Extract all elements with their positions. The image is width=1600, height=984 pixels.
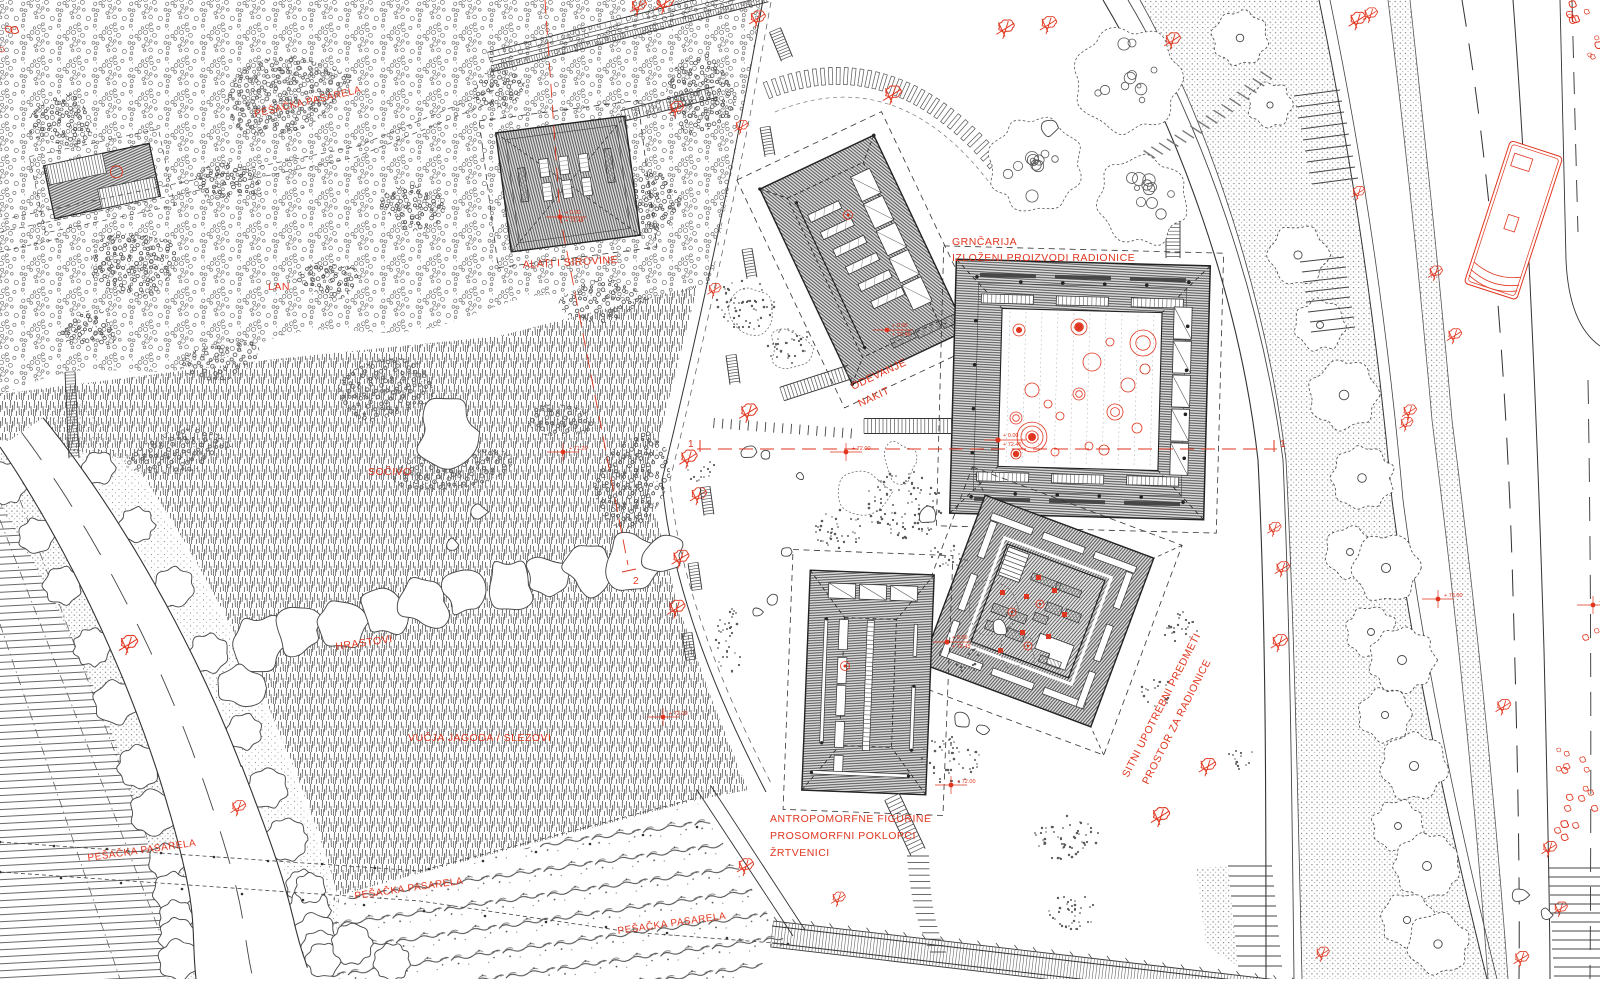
svg-text:+ 72.00: + 72.00 <box>852 446 871 452</box>
svg-text:IZLOŽENI PROIZVODI RADIONICE: IZLOŽENI PROIZVODI RADIONICE <box>952 251 1135 264</box>
svg-text:1: 1 <box>688 439 694 450</box>
svg-text:+ 72.45: + 72.45 <box>952 644 971 650</box>
svg-text:+ 0.00: + 0.00 <box>1003 433 1018 439</box>
svg-text:+ 0.00: + 0.00 <box>892 323 907 329</box>
svg-text:ŽRTVENICI: ŽRTVENICI <box>770 846 830 859</box>
svg-text:+ 71.20: + 71.20 <box>569 446 588 452</box>
svg-text:2: 2 <box>633 576 639 587</box>
svg-text:ANTROPOMORFNE FIGURINE: ANTROPOMORFNE FIGURINE <box>770 813 932 825</box>
svg-text:+ 72.46: + 72.46 <box>1003 442 1022 448</box>
svg-text:+ 73.00: + 73.00 <box>1444 593 1463 599</box>
svg-text:+ 0.00: + 0.00 <box>952 635 967 641</box>
svg-text:PROSOMORFNI POKLOPCI: PROSOMORFNI POKLOPCI <box>770 830 916 842</box>
svg-text:+ 72.00: + 72.00 <box>669 711 688 717</box>
svg-text:SOČIVO: SOČIVO <box>368 465 412 478</box>
svg-text:GRNČARIJA: GRNČARIJA <box>952 235 1017 248</box>
svg-text:+ 72.00: + 72.00 <box>957 779 976 785</box>
svg-text:1: 1 <box>1280 439 1286 450</box>
svg-text:+ 73.48: + 73.48 <box>565 218 584 224</box>
svg-text:LAN: LAN <box>268 281 290 293</box>
svg-text:+ 72.46: + 72.46 <box>892 332 911 338</box>
svg-text:+ 0.00: + 0.00 <box>565 210 580 216</box>
svg-text:VUČJA JAGODA / SLEZOVI: VUČJA JAGODA / SLEZOVI <box>408 731 551 744</box>
